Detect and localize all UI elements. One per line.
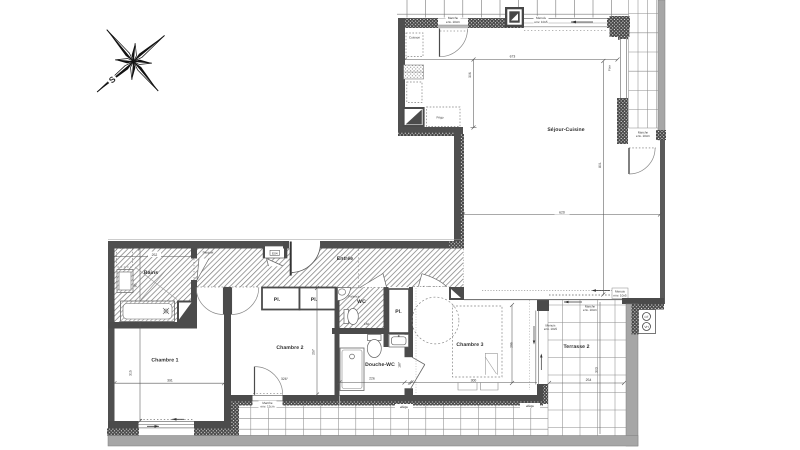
svg-text:env. 12cm: env. 12cm: [260, 405, 274, 409]
svg-text:Entrée: Entrée: [337, 256, 354, 262]
svg-text:673: 673: [510, 54, 516, 58]
svg-text:Chambre 1: Chambre 1: [151, 358, 178, 364]
svg-text:env. 10cm: env. 10cm: [583, 308, 597, 312]
svg-text:620: 620: [559, 210, 565, 214]
svg-text:Terrasse 2: Terrasse 2: [563, 344, 589, 350]
svg-text:303: 303: [595, 367, 599, 373]
svg-text:306: 306: [468, 72, 472, 78]
svg-text:Frigo: Frigo: [436, 116, 443, 120]
svg-text:Douche-WC: Douche-WC: [365, 362, 395, 368]
svg-text:Pl.: Pl.: [274, 297, 281, 303]
svg-text:252: 252: [152, 253, 158, 257]
svg-text:Fixe: Fixe: [608, 65, 612, 71]
svg-text:150: 150: [364, 322, 369, 326]
svg-text:315: 315: [129, 370, 133, 376]
svg-text:E04: E04: [272, 251, 278, 255]
svg-text:env. 10x5: env. 10x5: [613, 293, 626, 297]
svg-text:391: 391: [167, 379, 173, 383]
svg-text:env. 10x5: env. 10x5: [534, 20, 547, 24]
svg-text:Pl.: Pl.: [395, 309, 402, 315]
svg-text:326°: 326°: [281, 377, 289, 381]
svg-text:allège: allège: [526, 404, 535, 408]
svg-text:Chambre 2: Chambre 2: [276, 345, 303, 351]
svg-text:Parquet: Parquet: [203, 251, 214, 255]
svg-text:801: 801: [598, 162, 602, 168]
svg-text:Cuisson: Cuisson: [409, 36, 420, 40]
svg-text:env. 10cm: env. 10cm: [446, 20, 460, 24]
svg-text:env. 10x5: env. 10x5: [544, 327, 557, 331]
svg-text:90: 90: [134, 284, 138, 288]
svg-text:allège: allège: [400, 405, 409, 409]
svg-text:226: 226: [369, 377, 375, 381]
svg-text:CF: CF: [644, 315, 648, 319]
svg-text:Faïence: Faïence: [348, 294, 359, 298]
svg-text:295: 295: [510, 342, 514, 348]
svg-text:257: 257: [312, 349, 316, 355]
svg-text:WC: WC: [357, 299, 366, 305]
svg-text:254: 254: [586, 378, 592, 382]
svg-text:Séjour-Cuisine: Séjour-Cuisine: [547, 127, 584, 133]
svg-text:Pl.: Pl.: [311, 297, 318, 303]
svg-text:300: 300: [471, 379, 477, 383]
svg-text:VH: VH: [644, 325, 648, 329]
svg-text:Bains: Bains: [144, 270, 158, 276]
svg-text:env. 10cm: env. 10cm: [636, 134, 650, 138]
svg-text:Chambre 3: Chambre 3: [456, 342, 483, 348]
svg-text:187: 187: [398, 362, 402, 368]
